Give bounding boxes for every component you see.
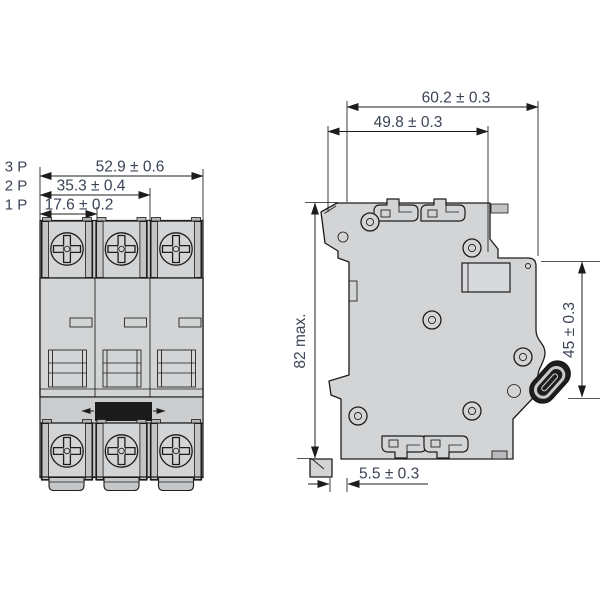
front-dim-3p-width: 52.9 ± 0.6: [96, 159, 165, 176]
front-view: 3 P 2 P 1 P 52.9 ± 0.6 35.3 ± 0.4 17.6 ±…: [5, 159, 203, 491]
front-dim-2p-width: 35.3 ± 0.4: [57, 178, 126, 195]
breaker-dimensional-drawing: 3 P 2 P 1 P 52.9 ± 0.6 35.3 ± 0.4 17.6 ±…: [0, 0, 604, 604]
front-bottom-clips: [49, 478, 194, 491]
bottom-terminal-blocks: [42, 420, 202, 481]
dim-total-depth: 60.2 ± 0.3: [422, 90, 491, 107]
front-mid-body: [40, 278, 203, 397]
pole-label-1p: 1 P: [5, 197, 28, 214]
dim-body-depth: 49.8 ± 0.3: [374, 114, 443, 131]
pole-label-3p: 3 P: [5, 159, 28, 176]
top-terminal-blocks: [42, 218, 202, 279]
top-right-tab: [491, 204, 508, 213]
dim-clip-offset: 5.5 ± 0.3: [359, 466, 419, 483]
toggle-handle: [95, 402, 152, 421]
side-view: 60.2 ± 0.3 49.8 ± 0.3 82 max. 45 ± 0.3 5…: [292, 90, 600, 493]
dim-height: 82 max.: [292, 313, 309, 368]
din-clip-tab: [310, 459, 332, 477]
technical-drawing-page: 3 P 2 P 1 P 52.9 ± 0.6 35.3 ± 0.4 17.6 ±…: [0, 0, 604, 604]
label-window: [462, 263, 510, 292]
dim-front-height: 45 ± 0.3: [561, 302, 578, 358]
front-dim-1p-width: 17.6 ± 0.2: [45, 197, 114, 214]
pole-label-2p: 2 P: [5, 178, 28, 195]
bottom-right-foot: [492, 451, 507, 459]
